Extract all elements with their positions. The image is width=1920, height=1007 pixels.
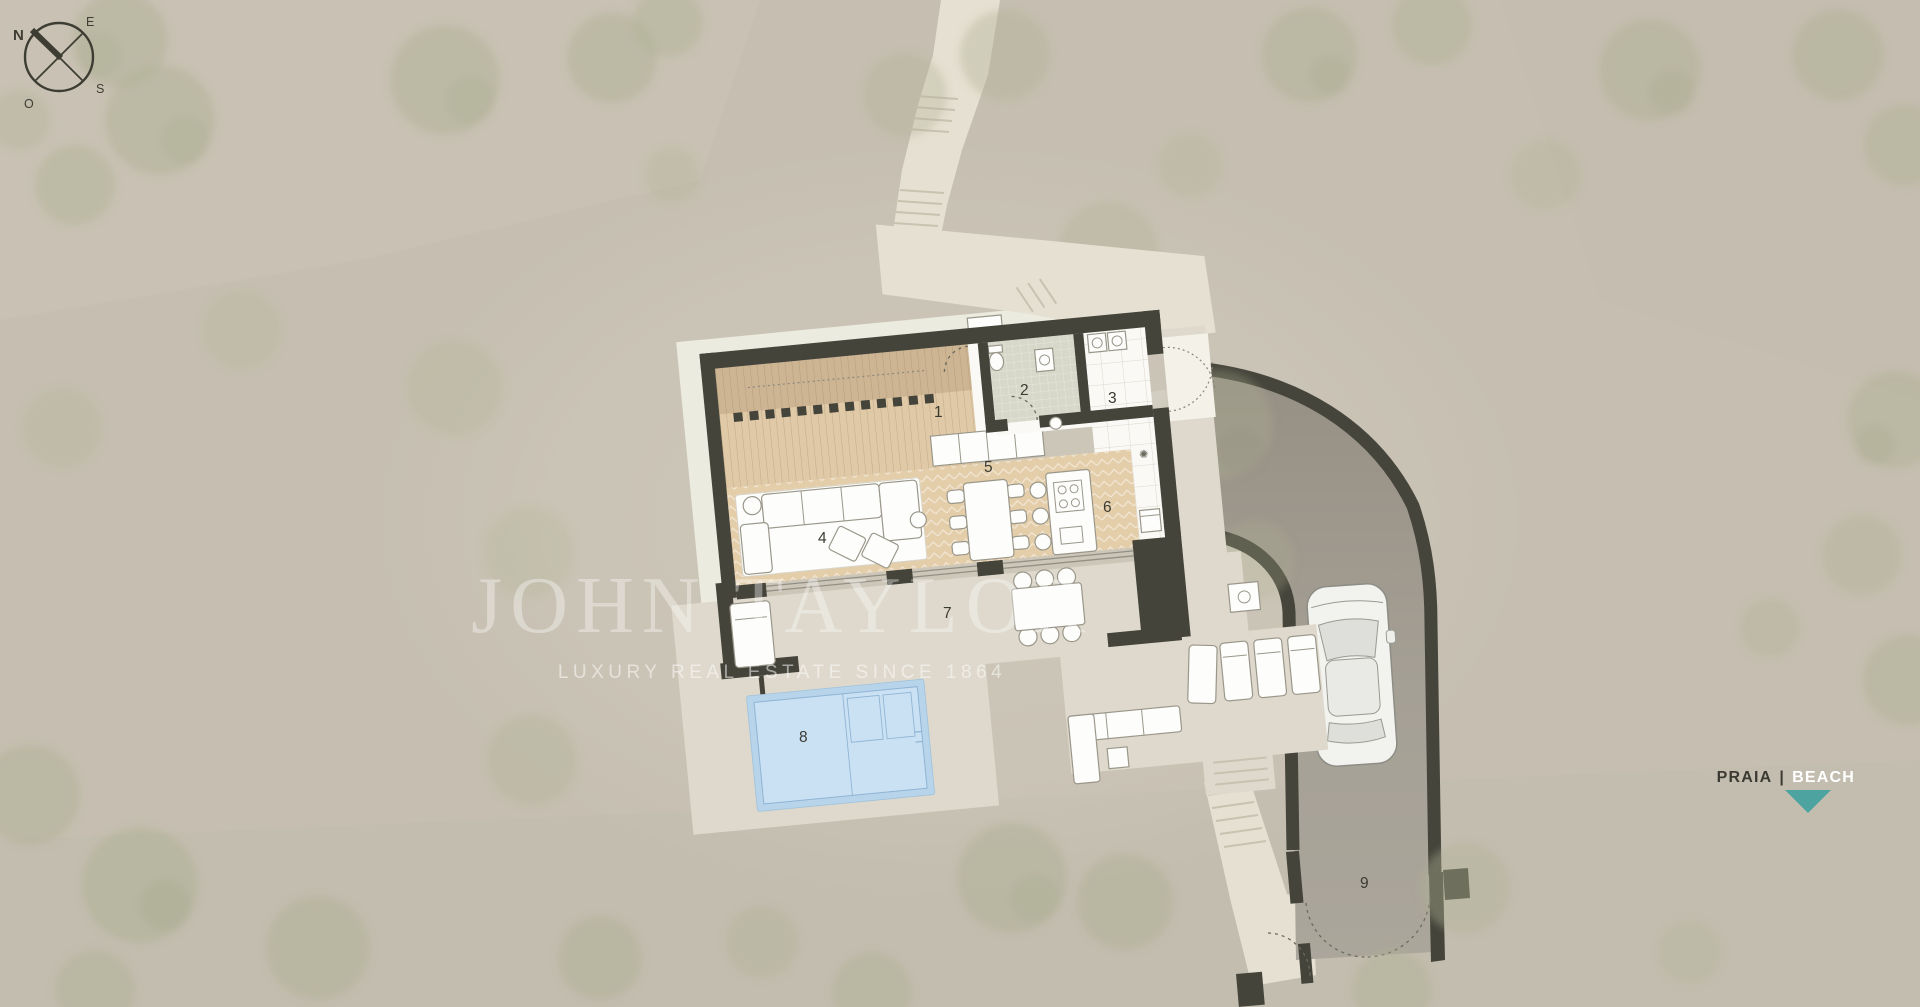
watermark-brand: JOHN TAYLOR <box>471 562 1093 650</box>
dining-set <box>946 478 1030 563</box>
room-label-9: 9 <box>1360 875 1369 892</box>
sink-icon <box>1035 348 1055 372</box>
fridge-icon: ✺ <box>1139 448 1149 461</box>
oven-icon <box>1139 509 1161 533</box>
badge-praia: PRAIA <box>1717 769 1773 786</box>
room-label-5: 5 <box>984 459 993 476</box>
room-label-2: 2 <box>1020 382 1029 399</box>
sofa-chaise <box>879 480 922 541</box>
bathroom <box>983 334 1081 424</box>
badge-separator: | <box>1779 769 1785 786</box>
room-label-4: 4 <box>818 530 827 547</box>
compass-west-label: O <box>24 97 34 111</box>
outdoor-shower <box>1228 582 1261 613</box>
kitchen-island <box>1029 469 1098 556</box>
watermark: JOHN TAYLOR LUXURY REAL ESTATE SINCE 186… <box>471 562 1093 683</box>
dining-table <box>963 479 1014 561</box>
east-landing <box>1162 333 1216 421</box>
badge-beach: BEACH <box>1792 769 1855 786</box>
watermark-tagline: LUXURY REAL ESTATE SINCE 1864 <box>558 662 1006 683</box>
room-label-3: 3 <box>1108 390 1117 407</box>
pool-ladder-icon <box>915 731 922 732</box>
compass-north-label: N <box>13 27 24 44</box>
lounge-side-table <box>1107 747 1129 769</box>
room-label-1: 1 <box>934 404 943 421</box>
wall-basin-icon <box>1049 417 1062 430</box>
compass-south-label: S <box>96 82 104 96</box>
room-label-6: 6 <box>1103 499 1112 516</box>
room-label-8: 8 <box>799 729 808 746</box>
site-plan-screenshot: ✺ <box>0 0 1920 1007</box>
site-plan-canvas: ✺ <box>0 0 1920 1007</box>
pool <box>746 679 934 812</box>
compass-east-label: E <box>86 15 94 29</box>
